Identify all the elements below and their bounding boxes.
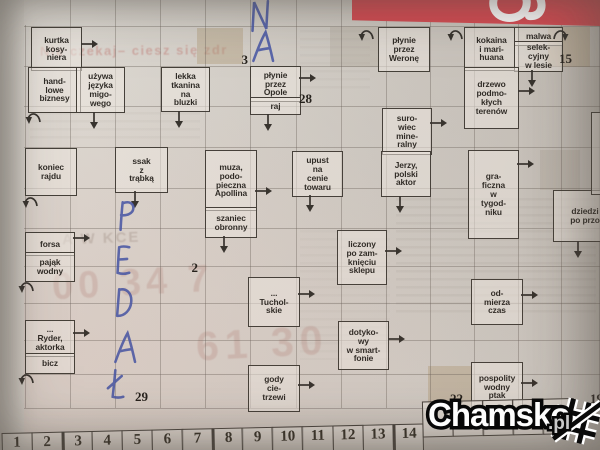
arrow-down-icon <box>260 112 280 132</box>
watermark: Chamsko Chamsko .pl .pl <box>422 394 600 450</box>
arrow-right-icon <box>296 285 316 305</box>
arrow-hook-down-icon <box>446 27 466 47</box>
arrow-right-icon <box>297 69 317 89</box>
arrow-hook-down-icon <box>17 371 37 391</box>
grid-line <box>296 0 297 408</box>
legend-cell: 3 <box>61 431 93 450</box>
handwritten-letter <box>115 198 141 237</box>
clue-cell: od- mierza czas <box>471 279 523 325</box>
clue-cell: koniec rajdu <box>25 148 77 196</box>
arrow-right-icon <box>515 155 535 175</box>
handwritten-letter <box>113 330 139 369</box>
arrow-hook-down-icon <box>17 279 37 299</box>
newspaper-crossword-photo: Nie czekaj– ciesz się zdrA W KCE00 34 76… <box>0 0 600 450</box>
arrow-down-icon <box>570 239 590 259</box>
grid-line <box>430 0 431 408</box>
arrow-hook-down-icon <box>357 27 377 47</box>
legend-cell: 4 <box>91 430 123 450</box>
clue-cell: muza, podo- pieczna Apollina <box>205 150 257 211</box>
legend-cell: 5 <box>121 430 153 450</box>
arrow-right-icon <box>386 330 406 350</box>
cell-number: 3 <box>228 52 248 68</box>
arrow-right-icon <box>71 229 91 249</box>
arrow-right-icon <box>79 35 99 55</box>
legend-cell: 2 <box>31 432 63 450</box>
clue-cell: pająk wodny <box>25 252 75 282</box>
arrow-right-icon <box>71 324 91 344</box>
handwritten-letter <box>111 285 137 324</box>
legend-cell: 6 <box>151 429 183 450</box>
legend-cell: 10 <box>272 426 304 450</box>
clue-cell: ssak z trąbką <box>115 147 168 193</box>
clue-cell: kokaina i mari- huana <box>464 27 519 71</box>
cell-number: 15 <box>552 51 572 67</box>
clue-cell: ... Tuchol- skie <box>248 277 300 327</box>
clue-cell: drzewo podmo- kłych terenów <box>464 67 519 129</box>
arrow-down-icon <box>302 193 322 213</box>
clue-cell: suro- wiec mine- ralny <box>382 108 432 155</box>
arrow-right-icon <box>428 114 448 134</box>
handwritten-letter <box>105 367 131 406</box>
arrow-down-icon <box>216 234 236 254</box>
masthead-logo-glyph <box>480 0 570 28</box>
arrow-right-icon <box>296 376 316 396</box>
arrow-right-icon <box>253 182 273 202</box>
clue-cell: upust na cenie towaru <box>292 151 343 197</box>
arrow-down-icon <box>171 109 191 129</box>
legend-cell: 13 <box>362 424 394 450</box>
clue-cell: lekka tkanina na bluzki <box>161 67 210 112</box>
legend-cell: 14 <box>392 423 424 450</box>
watermark-tld: .pl <box>548 414 570 433</box>
legend-cell: 1 <box>1 432 33 450</box>
clue-cell <box>591 112 600 195</box>
arrow-hook-down-icon <box>551 27 571 47</box>
legend-cell: 9 <box>242 427 274 450</box>
grid-line <box>22 340 600 341</box>
masthead-red-banner <box>352 0 600 26</box>
arrow-hook-down-icon <box>21 194 41 214</box>
grid-line <box>22 266 600 267</box>
arrow-hook-down-icon <box>24 110 44 130</box>
clue-cell: gra- ficzna w tygod- niku <box>468 150 519 239</box>
clue-cell: kurtka kosy- niera <box>31 27 82 71</box>
handwritten-letter <box>112 243 138 282</box>
clue-cell: Jerzy, polski aktor <box>381 151 431 197</box>
clue-cell: hand- lowe biznesy <box>28 67 81 113</box>
legend-cell: 11 <box>302 425 334 450</box>
clue-cell: ... Ryder, aktorka <box>25 320 75 357</box>
legend-cell: 8 <box>212 428 244 450</box>
clue-cell: płynie przez Weronę <box>378 27 430 72</box>
cell-number: 2 <box>178 260 198 276</box>
shaded-cell <box>540 150 580 190</box>
arrow-right-icon <box>519 374 539 394</box>
clue-cell: używa języka migo- wego <box>76 67 125 113</box>
arrow-right-icon <box>516 82 536 102</box>
arrow-down-icon <box>86 110 106 130</box>
clue-cell: dotyko- wy w smart- fonie <box>338 321 389 370</box>
arrow-right-icon <box>519 286 539 306</box>
grid-line <box>160 0 161 408</box>
legend-cell: 12 <box>332 425 364 450</box>
clue-cell: liczony po zam- knięciu sklepu <box>337 230 387 285</box>
grid-line <box>22 147 600 148</box>
legend-cell: 7 <box>182 428 214 450</box>
clue-cell: dziedzi po przo <box>553 190 600 242</box>
arrow-right-icon <box>383 242 403 262</box>
arrow-down-icon <box>392 194 412 214</box>
cell-number: 28 <box>292 91 312 107</box>
handwritten-letter <box>251 29 277 68</box>
cell-number: 29 <box>128 389 148 405</box>
